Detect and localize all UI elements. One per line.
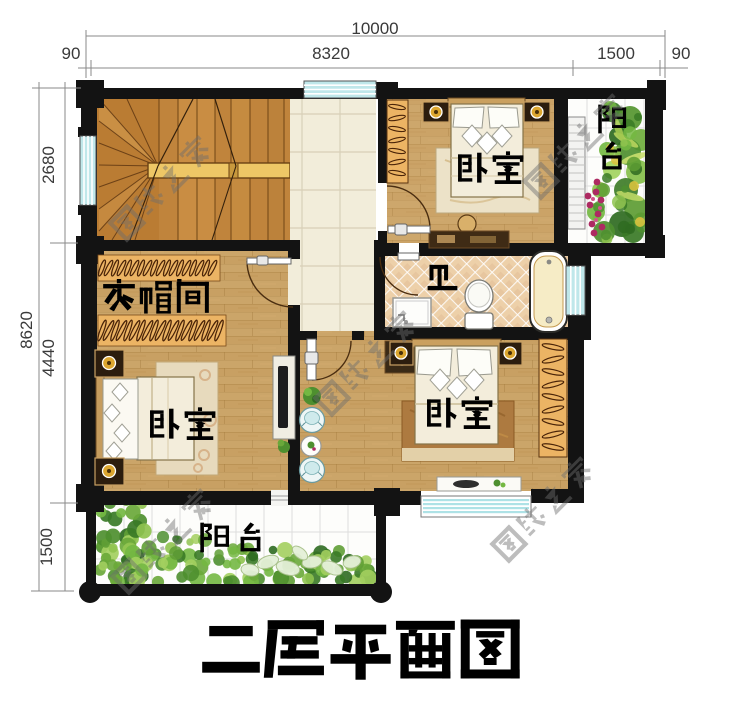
svg-text:1500: 1500 — [597, 44, 635, 63]
svg-text:1500: 1500 — [37, 528, 56, 566]
svg-text:8620: 8620 — [17, 311, 36, 349]
svg-text:2680: 2680 — [39, 146, 58, 184]
svg-text:90: 90 — [62, 44, 81, 63]
svg-text:4440: 4440 — [39, 339, 58, 377]
svg-text:90: 90 — [672, 44, 691, 63]
svg-text:8320: 8320 — [312, 44, 350, 63]
svg-text:10000: 10000 — [351, 19, 398, 38]
